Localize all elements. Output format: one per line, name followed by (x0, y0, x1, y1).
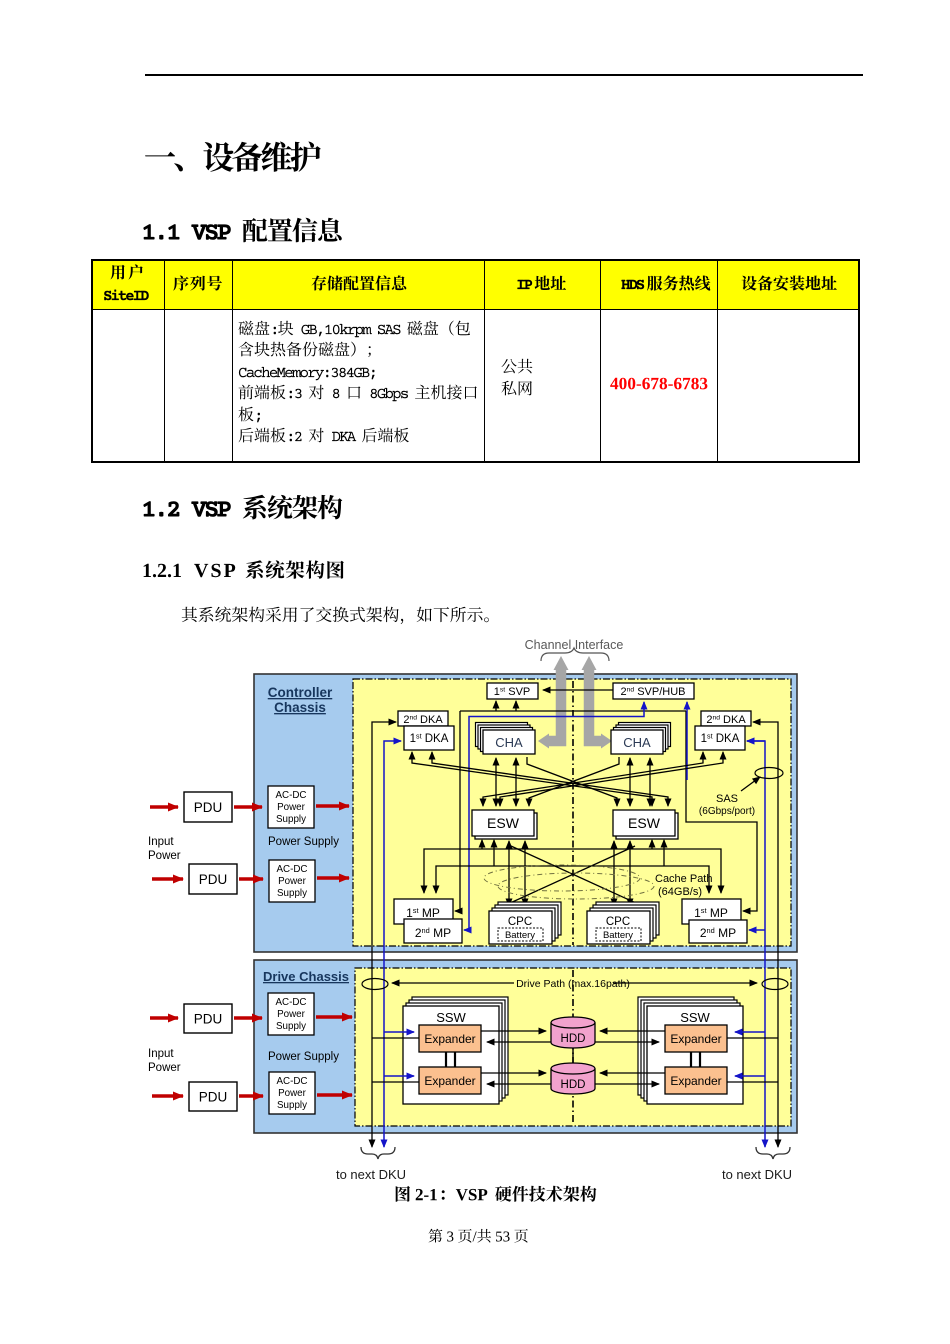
svg-text:Supply: Supply (276, 814, 306, 825)
svg-text:Power: Power (278, 1088, 307, 1099)
svg-text:Expander: Expander (424, 1032, 475, 1046)
svg-text:Supply: Supply (277, 1100, 307, 1111)
svg-text:(6Gbps/port): (6Gbps/port) (699, 806, 755, 817)
svg-text:SAS: SAS (716, 793, 738, 805)
svg-text:Expander: Expander (424, 1074, 475, 1088)
svg-text:Power Supply: Power Supply (268, 836, 339, 848)
svg-text:PDU: PDU (199, 1090, 228, 1105)
svg-text:PDU: PDU (194, 800, 223, 815)
svg-text:to next DKU: to next DKU (336, 1167, 406, 1182)
svg-text:ESW: ESW (487, 815, 520, 831)
svg-text:Channel Interface: Channel Interface (525, 638, 624, 652)
svg-text:Expander: Expander (670, 1032, 721, 1046)
svg-text:Chassis: Chassis (274, 700, 326, 715)
svg-text:HDD: HDD (561, 1033, 586, 1045)
svg-text:CHA: CHA (495, 735, 523, 750)
svg-text:Expander: Expander (670, 1074, 721, 1088)
svg-text:Cache Path: Cache Path (655, 873, 712, 885)
svg-text:Power: Power (148, 850, 181, 862)
svg-text:AC-DC: AC-DC (276, 1076, 307, 1087)
svg-text:2nd DKA: 2nd DKA (706, 714, 746, 726)
svg-text:Power: Power (148, 1062, 181, 1074)
svg-text:Controller: Controller (268, 685, 333, 700)
svg-text:2nd MP: 2nd MP (700, 926, 736, 940)
svg-text:CPC: CPC (606, 916, 630, 928)
svg-text:1st MP: 1st MP (406, 906, 440, 920)
svg-text:SSW: SSW (436, 1010, 466, 1025)
svg-text:1st MP: 1st MP (694, 906, 728, 920)
svg-text:AC-DC: AC-DC (275, 997, 306, 1008)
svg-text:1st DKA: 1st DKA (410, 732, 449, 745)
svg-text:to next DKU: to next DKU (722, 1167, 792, 1182)
svg-text:AC-DC: AC-DC (276, 864, 307, 875)
svg-text:Input: Input (148, 1048, 174, 1060)
svg-text:Drive Path (max.16path): Drive Path (max.16path) (516, 978, 630, 990)
svg-text:PDU: PDU (194, 1012, 223, 1027)
svg-text:2nd DKA: 2nd DKA (403, 714, 443, 726)
svg-text:Power: Power (277, 802, 306, 813)
svg-text:Drive Chassis: Drive Chassis (263, 969, 349, 984)
svg-text:SSW: SSW (680, 1010, 710, 1025)
svg-text:1st SVP: 1st SVP (494, 686, 531, 698)
svg-text:Supply: Supply (276, 1021, 306, 1032)
svg-text:Power: Power (277, 1009, 306, 1020)
svg-text:Input: Input (148, 836, 174, 848)
svg-text:(64GB/s): (64GB/s) (658, 886, 702, 898)
svg-text:PDU: PDU (199, 872, 228, 887)
svg-text:AC-DC: AC-DC (275, 790, 306, 801)
svg-text:ESW: ESW (628, 815, 661, 831)
svg-text:HDD: HDD (561, 1079, 586, 1091)
svg-text:CPC: CPC (508, 916, 532, 928)
svg-text:Power: Power (278, 876, 307, 887)
svg-text:1st DKA: 1st DKA (701, 732, 740, 745)
svg-text:Supply: Supply (277, 888, 307, 899)
svg-text:2nd MP: 2nd MP (415, 926, 451, 940)
svg-text:Power Supply: Power Supply (268, 1051, 339, 1063)
svg-text:CHA: CHA (623, 735, 651, 750)
svg-text:Battery: Battery (505, 930, 535, 941)
svg-text:Battery: Battery (603, 930, 633, 941)
